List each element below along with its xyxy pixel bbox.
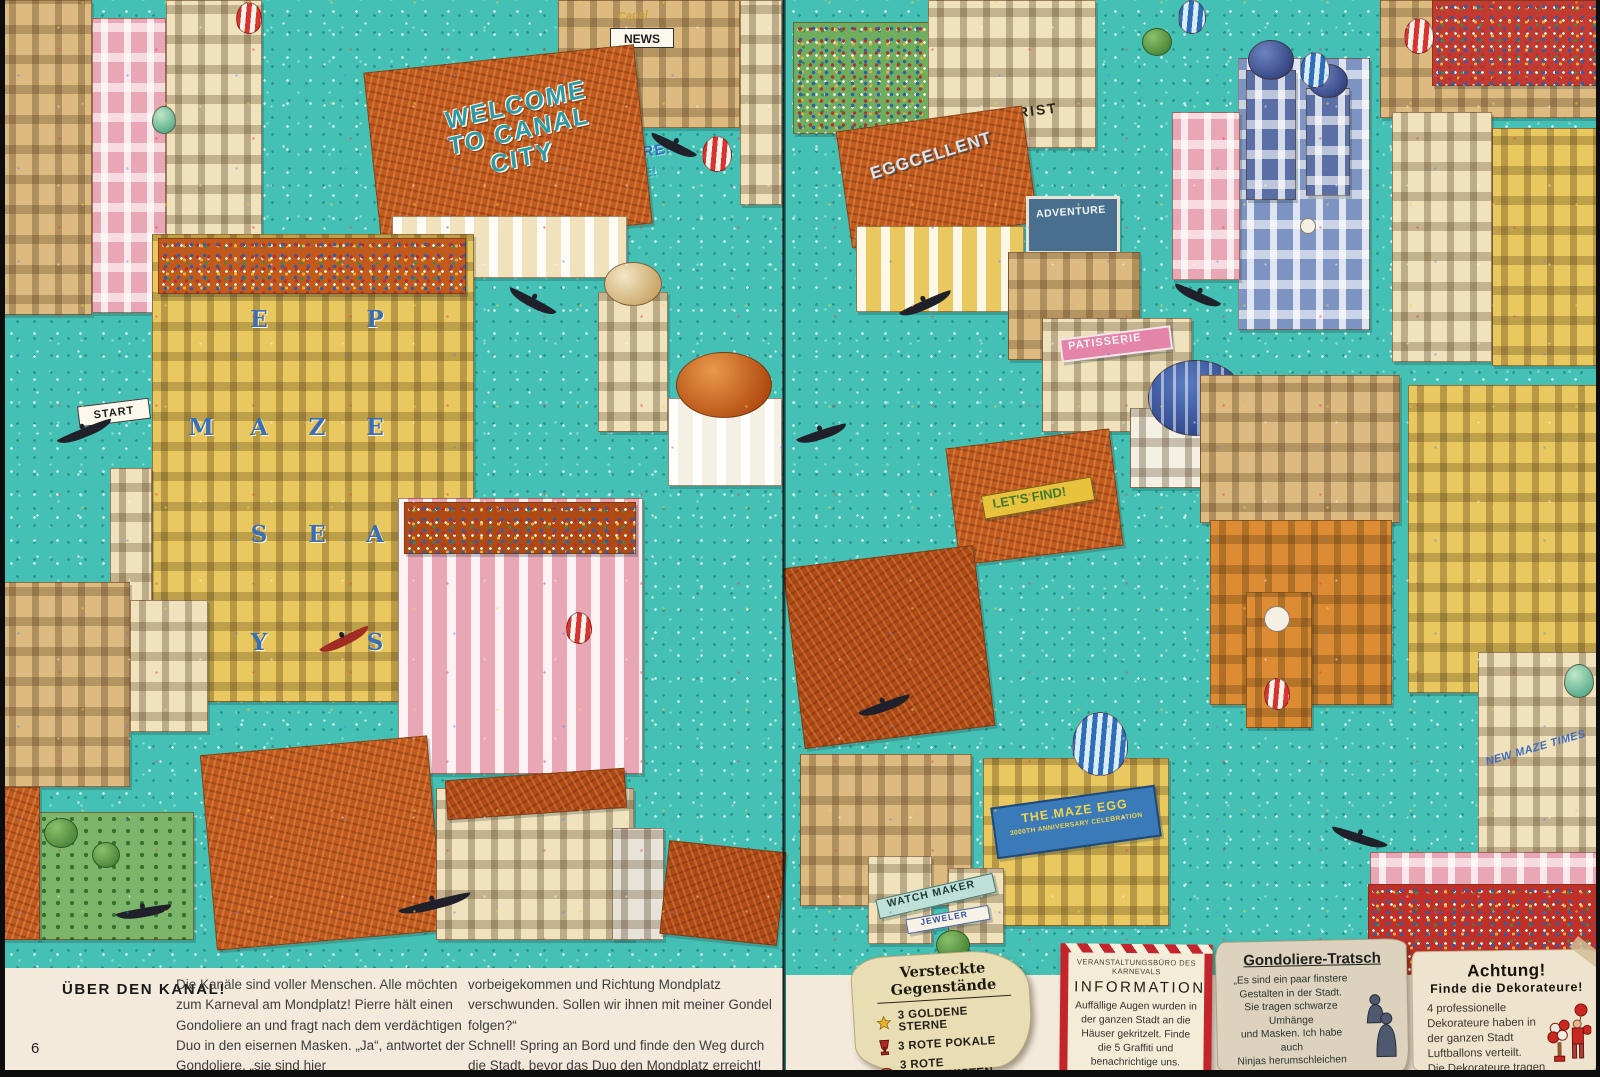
balloon bbox=[1564, 664, 1594, 698]
building bbox=[1408, 385, 1600, 693]
building-pink-tower bbox=[1172, 112, 1240, 280]
adventure-billboard bbox=[1026, 196, 1120, 254]
striped-border bbox=[1061, 943, 1213, 954]
rooftop bbox=[200, 735, 444, 950]
striped-balloon bbox=[1300, 52, 1330, 88]
church-tower bbox=[1246, 70, 1296, 200]
building bbox=[0, 0, 92, 315]
cloaked-figures-icon bbox=[1363, 992, 1400, 1059]
building bbox=[166, 0, 262, 265]
rooftop bbox=[0, 787, 40, 940]
information-card: VERANSTALTUNGSBÜRO DES KARNEVALS INFORMA… bbox=[1059, 943, 1212, 1073]
hidden-item-label: 3 GOLDENE STERNE bbox=[897, 1002, 1019, 1033]
balloon bbox=[152, 106, 176, 134]
hidden-item-row: 3 ROTE POKALE bbox=[878, 1031, 1021, 1056]
hidden-items-note: Versteckte Gegenstände 3 GOLDENE STERNE … bbox=[850, 948, 1035, 1077]
right-edge bbox=[1596, 0, 1600, 1077]
building bbox=[1392, 112, 1492, 362]
information-body: Auffällige Augen wurden in der ganzen St… bbox=[1073, 999, 1198, 1070]
bell-tower bbox=[612, 828, 664, 940]
intro-text-col1: Die Kanäle sind voller Menschen. Alle mö… bbox=[176, 975, 472, 1076]
book-spread: NEWS Canal COME HERE! COME HERE! WELCOME… bbox=[0, 0, 1600, 1077]
rooftop bbox=[659, 840, 786, 946]
tower-dome bbox=[604, 262, 662, 306]
page-number: 6 bbox=[31, 1040, 39, 1057]
striped-balloon bbox=[1072, 712, 1128, 776]
rooftop bbox=[783, 545, 996, 749]
clock-face bbox=[1264, 606, 1290, 632]
gondoliere-gossip-note: Gondoliere-Tratsch „Es sind ein paar fin… bbox=[1215, 938, 1410, 1075]
striped-balloon bbox=[702, 136, 732, 172]
intro-text-col2: vorbeigekommen und Richtung Mondplatz ve… bbox=[468, 975, 772, 1076]
church-tower bbox=[1306, 88, 1350, 196]
decorator-with-balloons-icon bbox=[1545, 1002, 1592, 1067]
temple-dome bbox=[676, 352, 772, 418]
hidden-items-title: Versteckte Gegenstände bbox=[875, 958, 1011, 1004]
bottom-edge bbox=[0, 1070, 1600, 1077]
hidden-item-label: 3 ROTE POKALE bbox=[898, 1035, 996, 1053]
tree bbox=[92, 842, 120, 868]
canal-script-sign: Canal bbox=[618, 9, 649, 23]
building bbox=[1492, 128, 1600, 366]
striped-balloon bbox=[236, 2, 262, 34]
tree bbox=[1142, 28, 1172, 56]
red-trophy-icon bbox=[878, 1039, 892, 1056]
striped-balloon bbox=[1264, 678, 1290, 710]
tree bbox=[44, 818, 78, 848]
tower bbox=[598, 292, 668, 432]
bridge-procession bbox=[1432, 0, 1600, 86]
gold-star-icon bbox=[876, 1015, 892, 1031]
building bbox=[1200, 375, 1400, 523]
striped-balloon bbox=[1404, 18, 1434, 54]
attention-body: 4 professionelle Dekorateure haben in de… bbox=[1427, 1000, 1556, 1077]
attention-subtitle: Finde die Dekorateure! bbox=[1427, 980, 1587, 996]
hidden-item-row: 3 GOLDENE STERNE bbox=[876, 1002, 1019, 1035]
maze-rooftop-party bbox=[158, 238, 466, 294]
building bbox=[130, 600, 208, 732]
left-edge bbox=[0, 0, 5, 1077]
striped-balloon bbox=[1178, 0, 1206, 34]
church-clock bbox=[1300, 218, 1316, 234]
church-dome bbox=[1248, 40, 1294, 80]
information-title: INFORMATION bbox=[1074, 978, 1198, 996]
building bbox=[740, 0, 782, 205]
striped-balloon bbox=[566, 612, 592, 644]
page-gutter bbox=[782, 0, 786, 1077]
attention-title: Achtung! bbox=[1426, 960, 1586, 982]
attention-note: Achtung! Finde die Dekorateure! 4 profes… bbox=[1411, 949, 1599, 1074]
gossip-title: Gondoliere-Tratsch bbox=[1228, 949, 1396, 970]
palazzo-roof-terrace bbox=[404, 502, 636, 554]
building bbox=[0, 582, 130, 787]
information-office-line: VERANSTALTUNGSBÜRO DES KARNEVALS bbox=[1074, 957, 1198, 976]
